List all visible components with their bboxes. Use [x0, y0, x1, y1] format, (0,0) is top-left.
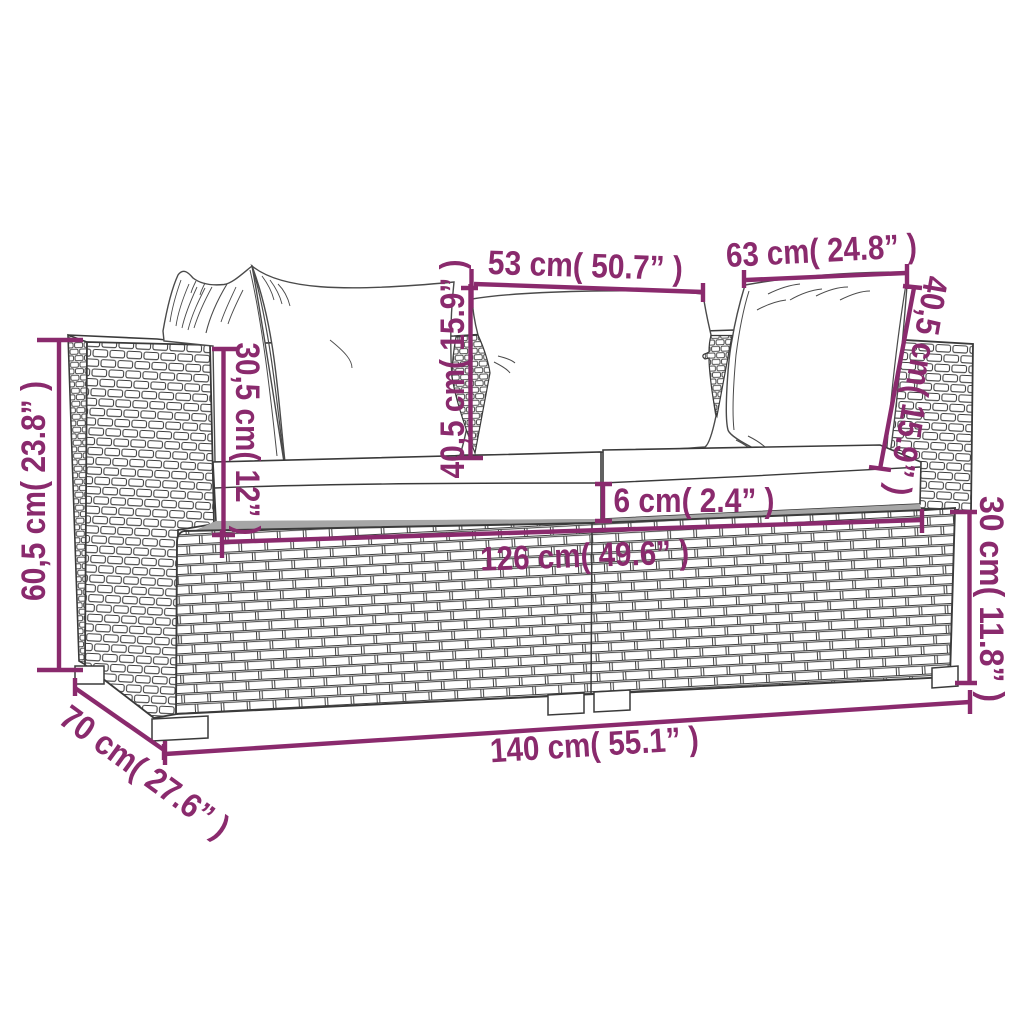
svg-text:60,5 cm( 23.8” ): 60,5 cm( 23.8” )	[15, 381, 53, 601]
svg-text:40,5 cm( 15.9” ): 40,5 cm( 15.9” )	[434, 260, 472, 479]
svg-text:53 cm( 50.7” ): 53 cm( 50.7” )	[487, 244, 683, 288]
svg-text:30,5 cm( 12” ): 30,5 cm( 12” )	[228, 343, 266, 536]
svg-text:6 cm( 2.4” ): 6 cm( 2.4” )	[614, 482, 775, 520]
svg-text:30 cm( 11.8” ): 30 cm( 11.8” )	[972, 496, 1010, 702]
svg-text:126 cm( 49.6” ): 126 cm( 49.6” )	[480, 533, 690, 578]
